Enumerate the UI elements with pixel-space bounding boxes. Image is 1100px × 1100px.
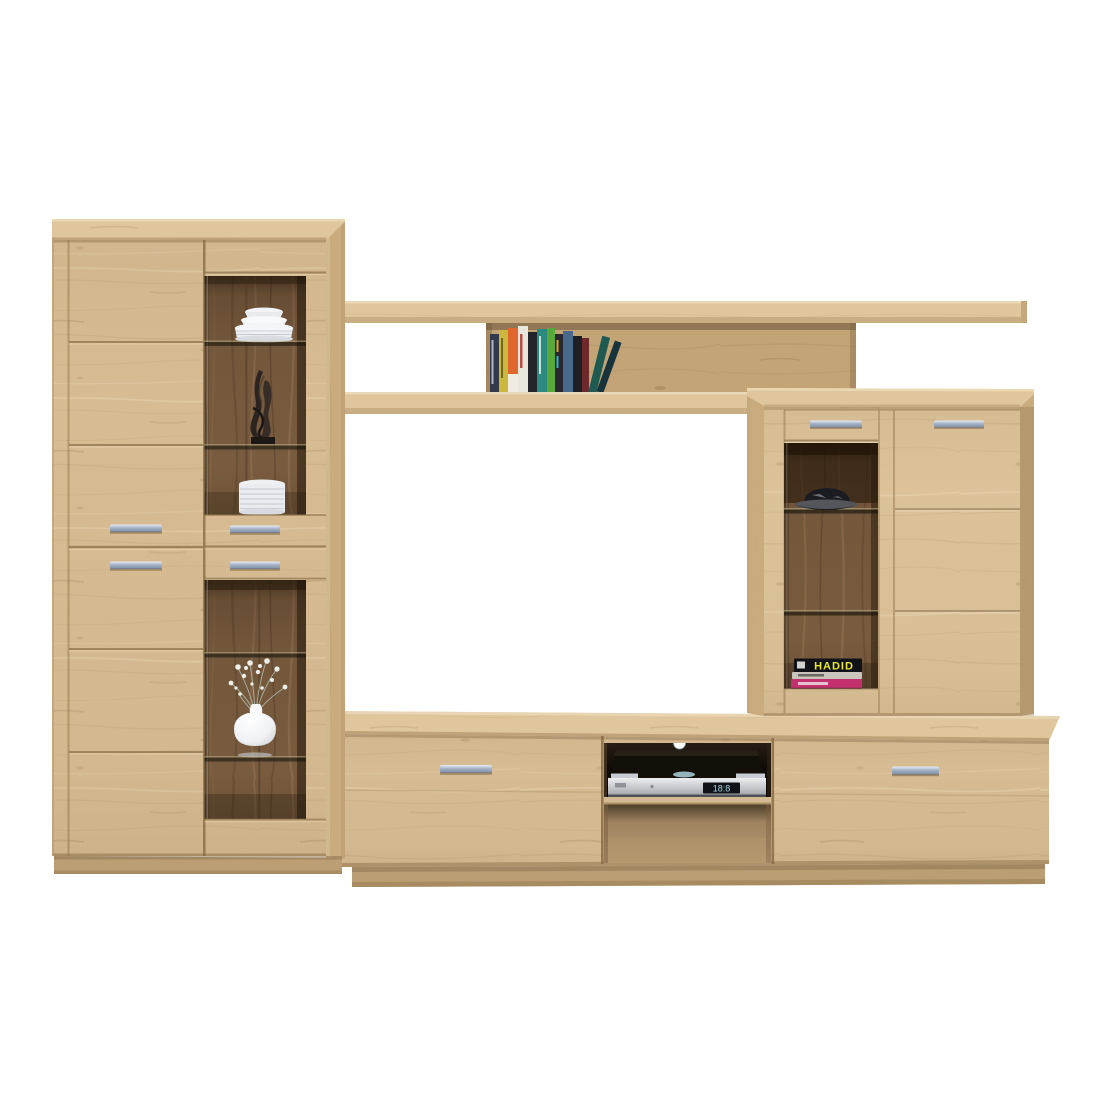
svg-text:18:8: 18:8 [713,784,731,794]
svg-text:HADID: HADID [814,661,854,673]
